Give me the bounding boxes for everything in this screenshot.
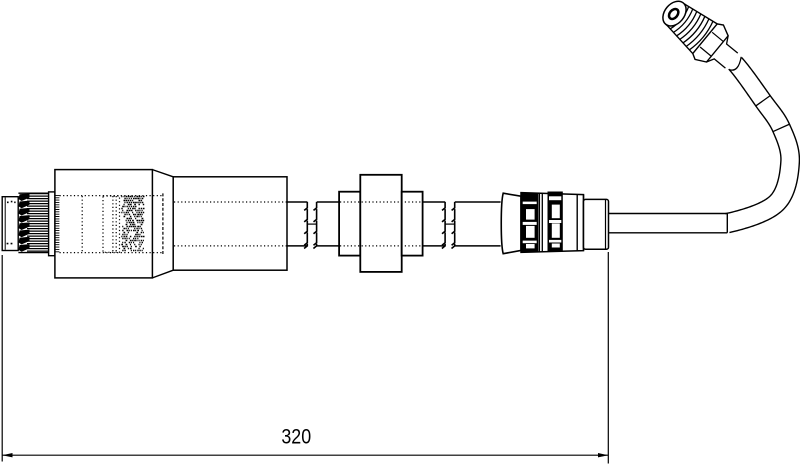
svg-text:320: 320 bbox=[281, 425, 311, 449]
